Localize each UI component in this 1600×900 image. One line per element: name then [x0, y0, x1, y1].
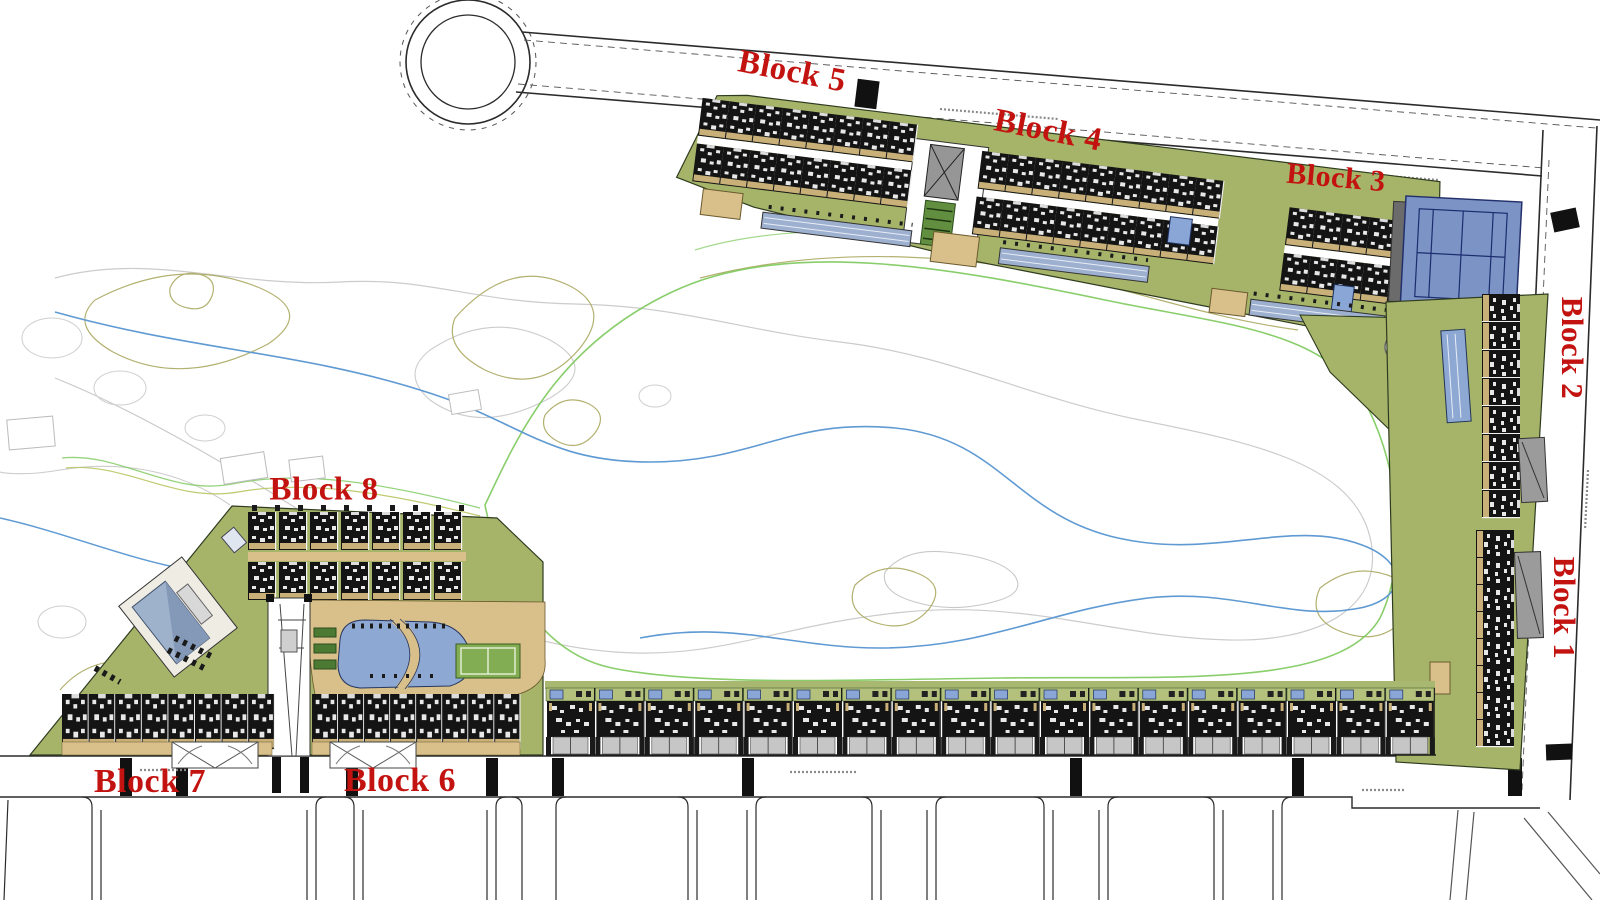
building-unit: [1482, 462, 1520, 490]
building-unit: [892, 688, 941, 755]
building-unit: [310, 512, 338, 550]
building-unit: [1476, 611, 1514, 639]
building-unit: [1476, 530, 1514, 558]
block1-column: [1476, 530, 1514, 747]
building-unit: [991, 688, 1040, 755]
building-unit: [434, 512, 462, 550]
building-unit: [694, 688, 743, 755]
villa-row-strip: [545, 681, 1436, 755]
boundary-green: [485, 262, 1397, 681]
outlying-plot: [7, 416, 55, 450]
building-unit: [403, 562, 431, 600]
building-unit: [1476, 719, 1514, 747]
contour-gray: [22, 318, 82, 358]
building-unit: [1482, 378, 1520, 406]
building-unit: [744, 688, 793, 755]
contour-gray: [639, 385, 671, 407]
building-unit: [1238, 688, 1287, 755]
building-unit: [364, 694, 390, 749]
top-road-edge: [522, 32, 1600, 120]
pond-contour: [884, 551, 1017, 607]
building-unit: [546, 688, 595, 755]
contour-gray: [185, 415, 225, 441]
building-unit: [62, 694, 89, 749]
building-unit: [1476, 665, 1514, 693]
parking-pad: [1209, 288, 1248, 316]
building-unit: [1287, 688, 1336, 755]
building-unit: [1139, 688, 1188, 755]
building-unit: [442, 694, 468, 749]
cul-de-sac-island: [421, 15, 515, 109]
building-unit: [142, 694, 169, 749]
building-unit: [403, 512, 431, 550]
parking-pad: [930, 232, 979, 267]
building-unit: [595, 688, 644, 755]
contour-gray: [38, 606, 86, 638]
contour-olive: [852, 568, 936, 626]
contour-gray: [94, 371, 146, 405]
building-unit: [1089, 688, 1138, 755]
parcel-blocks-8-7-6: [30, 506, 545, 768]
building-unit: [168, 694, 195, 749]
building-unit: [1192, 178, 1225, 219]
building-unit: [1482, 294, 1520, 322]
building-unit: [341, 562, 369, 600]
building-unit: [372, 512, 400, 550]
block8-row: [248, 512, 462, 550]
street-stubs: [4, 797, 1600, 900]
building-unit: [1482, 406, 1520, 434]
building-unit: [248, 512, 276, 550]
building-unit: [279, 562, 307, 600]
building-unit: [1482, 490, 1520, 518]
building-unit: [222, 694, 249, 749]
villa-row: [546, 688, 1435, 755]
building-unit: [372, 562, 400, 600]
site-plan: Block 5 Block 4 Block 3 Block 2 Block 1 …: [0, 0, 1600, 900]
building-unit: [1188, 688, 1237, 755]
walk-lane-tan: [248, 552, 466, 561]
block6-row: [312, 694, 521, 749]
building-unit: [416, 694, 442, 749]
building-unit: [338, 694, 364, 749]
building-unit: [645, 688, 694, 755]
block2-column: [1482, 294, 1520, 518]
sport-court: [456, 644, 520, 678]
building-unit: [885, 121, 918, 162]
building-unit: [1476, 584, 1514, 612]
building-unit: [1386, 688, 1435, 755]
site-plan-drawing: [0, 0, 1600, 900]
building-unit: [434, 562, 462, 600]
bottom-road-edge: [0, 797, 1540, 808]
swimming-pool: [1167, 217, 1192, 246]
building-unit: [1040, 688, 1089, 755]
label-block-7: Block 7: [94, 763, 206, 801]
building-unit: [312, 694, 338, 749]
building-unit: [941, 688, 990, 755]
building-unit: [89, 694, 116, 749]
block8-row: [248, 562, 462, 600]
building-unit: [1476, 638, 1514, 666]
building-unit: [248, 694, 275, 749]
building-unit: [390, 694, 416, 749]
building-unit: [195, 694, 222, 749]
building-unit: [1476, 692, 1514, 720]
building-unit: [115, 694, 142, 749]
building-unit: [468, 694, 494, 749]
building-unit: [1336, 688, 1385, 755]
building-unit: [793, 688, 842, 755]
building-unit: [1482, 434, 1520, 462]
building-unit: [494, 694, 520, 749]
building-unit: [1476, 557, 1514, 585]
swimming-pool: [1331, 284, 1354, 312]
parking-pad: [700, 189, 743, 220]
label-block-2: Block 2: [1554, 297, 1590, 400]
building-unit: [842, 688, 891, 755]
label-block-8: Block 8: [270, 472, 379, 509]
label-block-6: Block 6: [344, 762, 456, 800]
label-block-1: Block 1: [1546, 557, 1582, 660]
building-unit: [279, 512, 307, 550]
building-unit: [1482, 350, 1520, 378]
contour-olive: [170, 273, 214, 309]
block7-row: [62, 694, 275, 749]
building-unit: [341, 512, 369, 550]
garden-beds: [314, 628, 336, 669]
building-unit: [1482, 322, 1520, 350]
contour-olive: [544, 400, 601, 446]
building-unit: [310, 562, 338, 600]
building-unit: [880, 167, 913, 208]
